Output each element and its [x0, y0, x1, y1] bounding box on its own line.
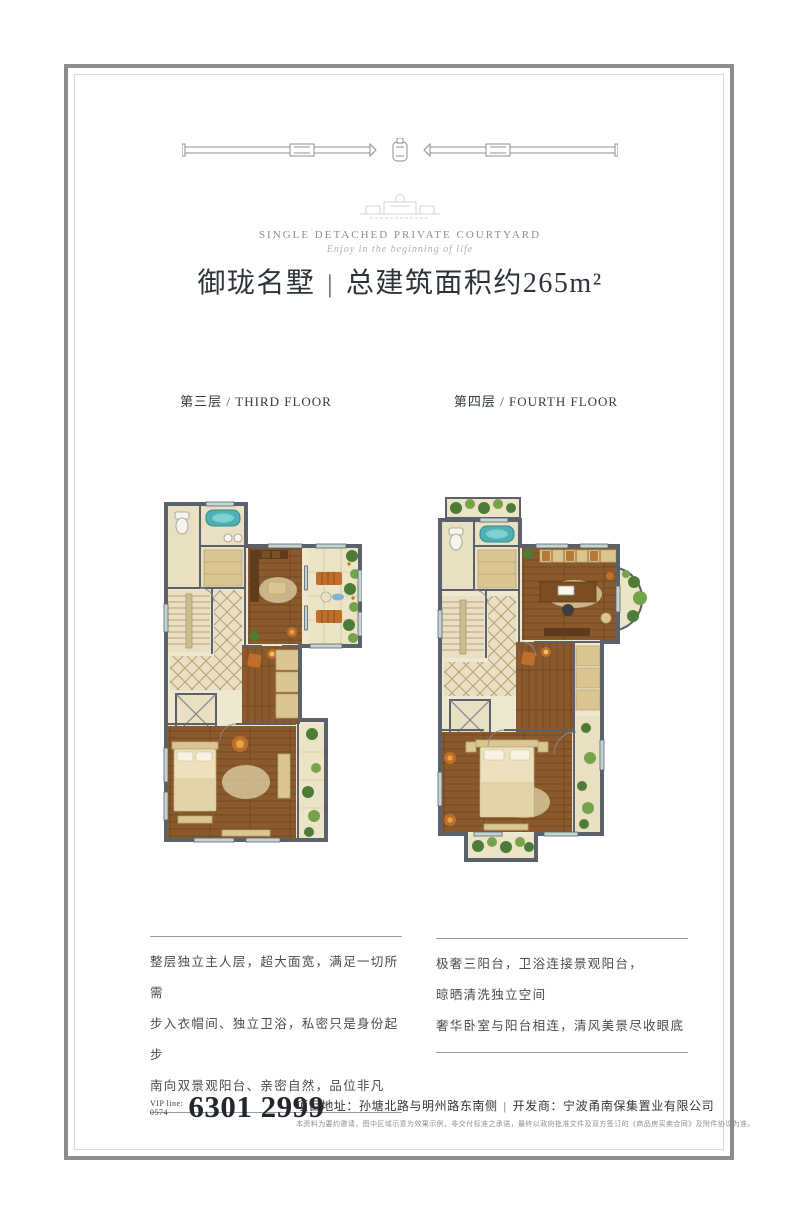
- footer-info: 项目地址：孙塘北路与明州路东南侧|开发商：宁波甬南保集置业有限公司 本资料为要约…: [296, 1097, 676, 1129]
- top-balcony: [446, 498, 520, 518]
- brochure-page: SINGLE DETACHED PRIVATE COURTYARD Enjoy …: [0, 0, 800, 1229]
- bathroom: [442, 522, 518, 590]
- master-bedroom: [168, 726, 296, 838]
- fourth-floor-plan-image: [424, 490, 648, 870]
- phone-area-code: 0574: [150, 1108, 183, 1117]
- address-label: 项目地址：: [296, 1099, 359, 1113]
- lower-balcony: [300, 724, 324, 838]
- total-area: 总建筑面积约265m²: [346, 268, 603, 299]
- disclaimer-text: 本资料为要约邀请，图中区域示意为效果示例，非交付标准之承诺，最终以政府批准文件及…: [296, 1119, 676, 1129]
- stairs: [168, 590, 210, 652]
- desc-line: 奢华卧室与阳台相连，清风美景尽收眼底: [436, 1011, 688, 1042]
- brand-tagline: Enjoy in the beginning of life: [0, 244, 800, 255]
- third-floor-description: 整层独立主人层，超大面宽，满足一切所需 步入衣帽间、独立卫浴，私密只是身份起步 …: [150, 936, 402, 1113]
- arc-balcony: [618, 568, 647, 630]
- upper-balcony: [308, 548, 360, 644]
- study-room: [522, 548, 618, 640]
- fourth-floor-description: 极奢三阳台，卫浴连接景观阳台， 晾晒清洗独立空间 奢华卧室与阳台相连，清风美景尽…: [436, 938, 688, 1053]
- address-value: 孙塘北路与明州路东南侧: [359, 1099, 498, 1113]
- ornament-divider-icon: [182, 138, 618, 164]
- master-bedroom: [442, 732, 572, 832]
- living-room: [248, 548, 302, 644]
- walk-in-closet: [204, 550, 242, 586]
- third-floor-label: 第三层 / THIRD FLOOR: [150, 391, 362, 410]
- fourth-floor-label: 第四层 / FOURTH FLOOR: [424, 391, 648, 410]
- third-floor-plan-image: [150, 486, 362, 858]
- project-name: 御珑名墅: [197, 268, 315, 299]
- brand-caption: SINGLE DETACHED PRIVATE COURTYARD: [0, 229, 800, 241]
- phone-label: VIP line:: [150, 1099, 183, 1108]
- bottom-balcony: [468, 836, 534, 858]
- title-separator: |: [327, 271, 334, 298]
- desc-line: 整层独立主人层，超大面宽，满足一切所需: [150, 947, 402, 1009]
- project-address-line: 项目地址：孙塘北路与明州路东南侧|开发商：宁波甬南保集置业有限公司: [296, 1097, 676, 1114]
- desc-line: 极奢三阳台，卫浴连接景观阳台，: [436, 949, 688, 980]
- corridor: [242, 646, 300, 724]
- address-separator: |: [504, 1099, 507, 1113]
- stairs: [442, 596, 484, 658]
- developer-value: 宁波甬南保集置业有限公司: [563, 1099, 714, 1113]
- developer-label: 开发商：: [513, 1099, 563, 1113]
- desc-line: 步入衣帽间、独立卫浴，私密只是身份起步: [150, 1009, 402, 1071]
- page-title: 御珑名墅|总建筑面积约265m²: [0, 261, 800, 301]
- phone-prefix: VIP line: 0574: [150, 1099, 183, 1117]
- brand-logo-icon: [352, 192, 448, 222]
- desc-line: 晾晒清洗独立空间: [436, 980, 688, 1011]
